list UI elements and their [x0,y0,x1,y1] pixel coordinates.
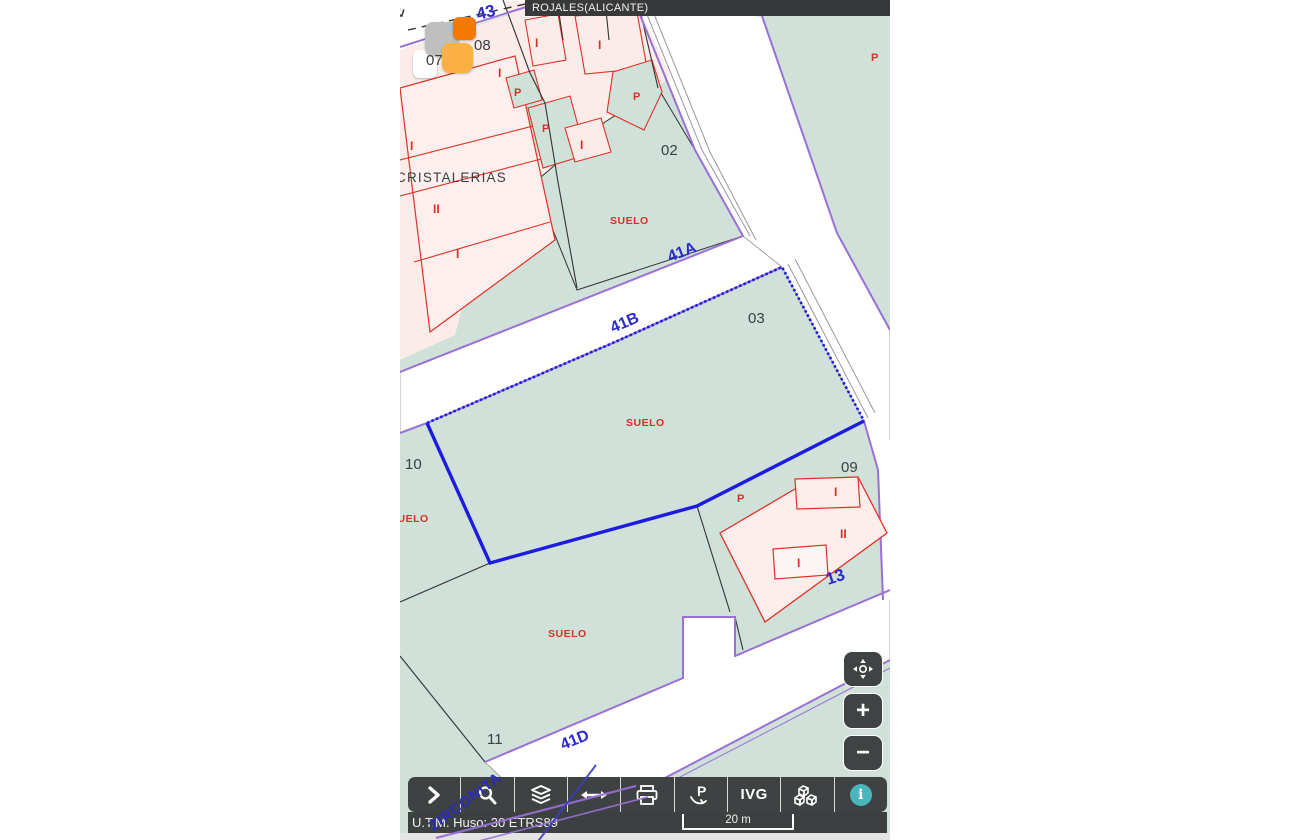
minus-icon: − [856,739,870,767]
status-bar: U.T.M. Huso: 30 ETRS89 20 m [408,812,887,833]
suelo-label: SUELO [610,215,649,227]
layers-icon [529,785,553,805]
search-button[interactable] [461,777,514,812]
svg-text:P: P [697,783,706,799]
3d-view-button[interactable] [781,777,834,812]
marker-amber[interactable] [442,43,473,73]
parcel-number-11: 11 [487,731,503,748]
parcel-number-10: 10 [405,456,422,473]
cubes-icon [794,784,820,806]
floor-label: I [598,38,601,52]
marker-label-08: 08 [474,37,491,54]
magnifier-icon [477,785,497,805]
building-09-room[interactable] [795,477,860,509]
floor-label: I [410,139,413,153]
parcel-number-02: 02 [661,142,678,159]
patio-label: P [871,52,878,64]
scale-bar: 20 m [682,814,794,830]
scale-label: 20 m [725,814,751,826]
patio-label: P [633,91,640,103]
measure-button[interactable] [568,777,621,812]
double-arrow-icon [581,788,607,802]
marker-orange[interactable] [453,17,476,40]
floor-label: I [456,247,459,261]
patio-label: P [514,87,521,99]
patio-label: P [737,493,744,505]
patio-label: P [542,123,549,135]
municipality-title: ROJALES(ALICANTE) [532,2,648,14]
utm-projection-text: U.T.M. Huso: 30 ETRS89 [412,815,558,830]
layers-button[interactable] [515,777,568,812]
marker-label-07: 07 [426,52,443,69]
chevron-right-icon [426,786,442,804]
bottom-strip [400,833,890,840]
info-letter: i [858,787,863,803]
p-pointer-icon: P [688,783,714,807]
suelo-label: SUELO [548,628,587,640]
map-title-bar: ROJALES(ALICANTE) [525,0,890,16]
info-circle-icon: i [850,784,872,806]
suelo-label: SUELO [626,417,665,429]
printer-icon [636,785,658,805]
print-button[interactable] [621,777,674,812]
page: 43 E CRISTALERIAS I II I I I I P P P I 0… [0,0,1290,840]
info-button[interactable]: i [835,777,887,812]
parcel-number-03: 03 [748,310,765,327]
ivg-label: IVG [740,786,767,803]
zoom-out-button[interactable]: − [843,735,883,771]
floor-label: II [840,527,847,541]
expand-panel-button[interactable] [408,777,461,812]
label-cristalerias: CRISTALERIAS [400,170,507,185]
floor-label: I [498,66,501,80]
map-toolbar: P IVG i [408,777,887,812]
floor-label: II [433,202,440,216]
cadastral-map-viewport[interactable]: 43 E CRISTALERIAS I II I I I I P P P I 0… [400,0,890,840]
parcel-report-button[interactable]: P [675,777,728,812]
floor-label: I [535,36,538,50]
building-09-inner[interactable] [773,545,828,579]
pan-button[interactable] [843,651,883,687]
floor-label: I [834,485,837,499]
floor-label: I [580,138,583,152]
plus-icon: + [856,697,870,725]
map-canvas[interactable]: 43 E CRISTALERIAS I II I I I I P P P I 0… [400,0,890,833]
pan-icon [853,659,873,679]
suelo-label: SUELO [400,513,429,525]
parcel-number-09: 09 [841,459,858,476]
zoom-in-button[interactable]: + [843,693,883,729]
floor-label: I [797,556,800,570]
ivg-button[interactable]: IVG [728,777,781,812]
